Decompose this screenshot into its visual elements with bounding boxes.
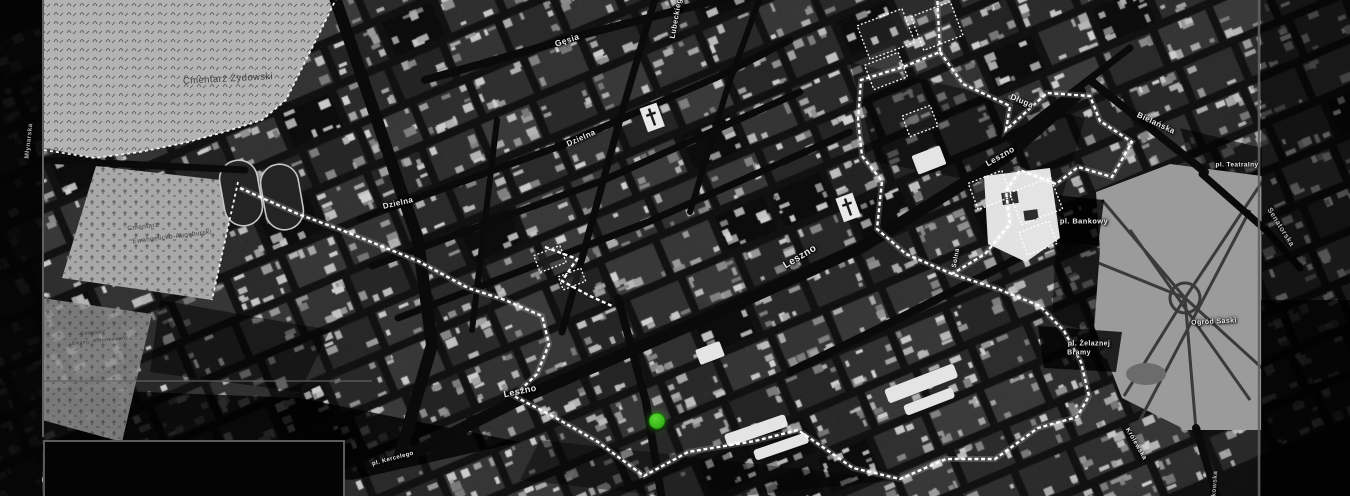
map-root[interactable]: Cmentarz ŻydowskiCmentarzEwangelicko-Aug… bbox=[0, 0, 1350, 496]
icon-layer bbox=[639, 103, 860, 223]
map-label-pl-bankowy: pl. Bankowy bbox=[1060, 217, 1108, 226]
map-label-pl-teatralny: pl. Teatralny bbox=[1215, 162, 1258, 169]
church-icon bbox=[835, 193, 860, 223]
map-label-bramy: Bramy bbox=[1067, 350, 1091, 357]
location-marker[interactable] bbox=[649, 413, 666, 430]
inset-panel bbox=[44, 441, 344, 496]
map-label-pl-elaznej: pl. Żelaznej bbox=[1068, 341, 1111, 348]
